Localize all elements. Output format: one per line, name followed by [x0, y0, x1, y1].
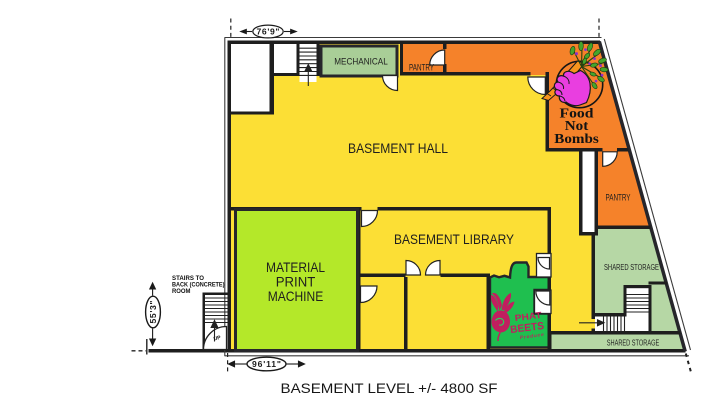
svg-text:96'11": 96'11" [252, 359, 281, 369]
svg-text:PANTRY: PANTRY [409, 63, 434, 73]
svg-text:PRINT: PRINT [276, 275, 316, 290]
svg-text:SHARED STORAGE: SHARED STORAGE [604, 263, 659, 272]
svg-text:BACK (CONCRETE): BACK (CONCRETE) [172, 283, 225, 289]
svg-text:MACHINE: MACHINE [268, 289, 324, 304]
svg-text:55'3": 55'3" [148, 301, 158, 324]
svg-text:BASEMENT HALL: BASEMENT HALL [348, 141, 448, 156]
svg-text:PANTRY: PANTRY [606, 193, 631, 203]
svg-text:SHARED STORAGE: SHARED STORAGE [607, 339, 660, 348]
svg-text:Bombs: Bombs [554, 132, 599, 147]
svg-text:BASEMENT LEVEL +/- 4800 SF: BASEMENT LEVEL +/- 4800 SF [281, 381, 498, 396]
svg-text:STAIRS TO: STAIRS TO [172, 276, 204, 282]
svg-text:BASEMENT LIBRARY: BASEMENT LIBRARY [394, 232, 514, 247]
svg-text:MATERIAL: MATERIAL [266, 260, 325, 275]
svg-text:76'9": 76'9" [257, 27, 280, 37]
svg-text:MECHANICAL: MECHANICAL [334, 57, 388, 68]
svg-text:ROOM: ROOM [172, 289, 191, 295]
